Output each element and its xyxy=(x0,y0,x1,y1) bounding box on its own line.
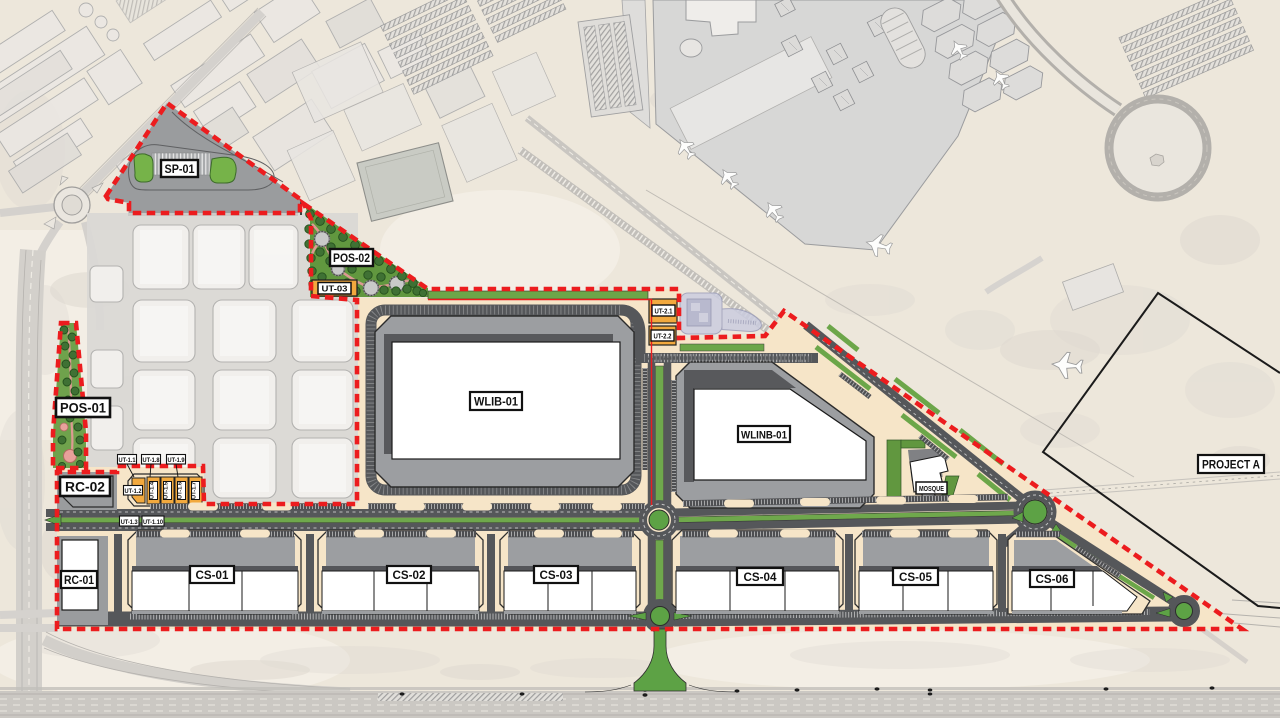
svg-text:UT-1.6: UT-1.6 xyxy=(178,482,184,499)
svg-text:UT-1.7: UT-1.7 xyxy=(192,482,198,499)
svg-text:MOSQUE: MOSQUE xyxy=(919,486,944,493)
svg-text:CS-04: CS-04 xyxy=(744,572,778,584)
svg-text:WLIB-01: WLIB-01 xyxy=(474,395,518,409)
svg-text:CS-06: CS-06 xyxy=(1036,574,1069,586)
svg-text:UT-1.4: UT-1.4 xyxy=(150,481,156,499)
svg-text:UT-1.2: UT-1.2 xyxy=(125,488,143,495)
svg-text:WLINB-01: WLINB-01 xyxy=(741,430,787,442)
svg-text:RC-01: RC-01 xyxy=(64,575,95,587)
svg-text:CS-01: CS-01 xyxy=(196,570,230,582)
svg-text:UT-1.1: UT-1.1 xyxy=(119,457,137,464)
svg-text:UT-1.9: UT-1.9 xyxy=(168,457,186,464)
svg-text:UT-1.5: UT-1.5 xyxy=(164,482,170,499)
svg-text:POS-01: POS-01 xyxy=(60,401,106,416)
svg-text:UT-2.2: UT-2.2 xyxy=(654,334,672,341)
svg-text:POS-02: POS-02 xyxy=(333,251,370,265)
svg-text:UT-1.8: UT-1.8 xyxy=(143,457,161,464)
svg-text:UT-2.1: UT-2.1 xyxy=(655,309,673,316)
svg-text:RC-02: RC-02 xyxy=(65,480,105,495)
svg-text:UT-03: UT-03 xyxy=(322,285,349,294)
svg-text:UT-1.3: UT-1.3 xyxy=(121,519,139,526)
svg-text:SP-01: SP-01 xyxy=(165,162,195,176)
svg-text:PROJECT A: PROJECT A xyxy=(1202,460,1260,472)
svg-text:CS-03: CS-03 xyxy=(540,570,573,582)
svg-text:UT-1.10: UT-1.10 xyxy=(143,519,164,526)
svg-text:CS-05: CS-05 xyxy=(899,572,933,584)
svg-text:CS-02: CS-02 xyxy=(393,570,426,582)
